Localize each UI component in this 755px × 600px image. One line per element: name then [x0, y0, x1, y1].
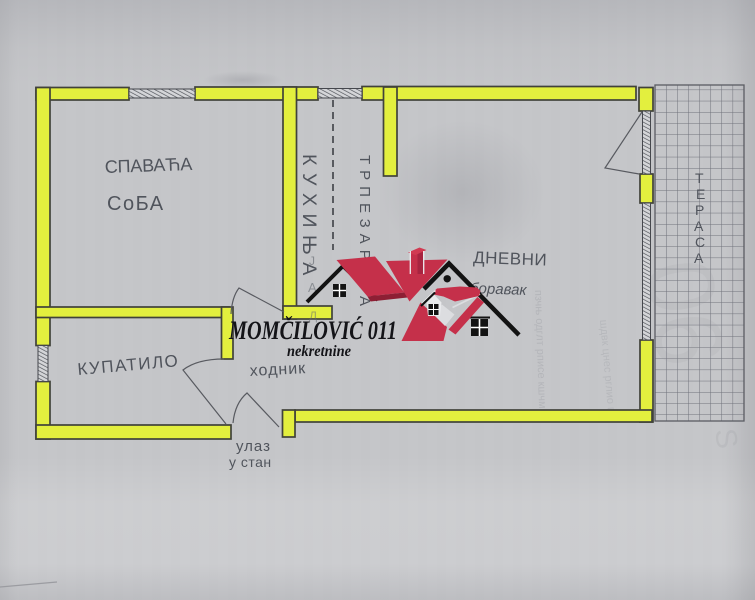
svg-text:СПАВАЋА: СПАВАЋА — [104, 154, 192, 177]
svg-text:Р: Р — [695, 202, 704, 218]
svg-text:КУПАТИЛО: КУПАТИЛО — [77, 351, 180, 379]
svg-text:улаз: улаз — [236, 438, 271, 455]
svg-text:А: А — [694, 250, 704, 266]
svg-text:шдвк цнес рглио пт: шдвк цнес рглио пт — [597, 319, 618, 418]
svg-text:nekretnine: nekretnine — [287, 343, 351, 360]
svg-text:ДНЕВНИ: ДНЕВНИ — [473, 248, 548, 270]
svg-text:ходник: ходник — [249, 360, 306, 380]
svg-text:у стан: у стан — [229, 454, 272, 470]
svg-text:MOMČILOVIĆ 011: MOMČILOVIĆ 011 — [228, 316, 397, 345]
svg-text:пзчњ одглт рписе кшчм: пзчњ одглт рписе кшчм — [532, 290, 548, 409]
svg-text:Ј: Ј — [309, 254, 315, 268]
svg-text:СоБА: СоБА — [107, 193, 165, 215]
svg-text:С: С — [695, 234, 705, 250]
svg-text:S: S — [708, 426, 743, 450]
svg-text:Т: Т — [695, 170, 704, 186]
svg-text:А: А — [694, 218, 704, 234]
svg-text:Е: Е — [696, 186, 705, 202]
